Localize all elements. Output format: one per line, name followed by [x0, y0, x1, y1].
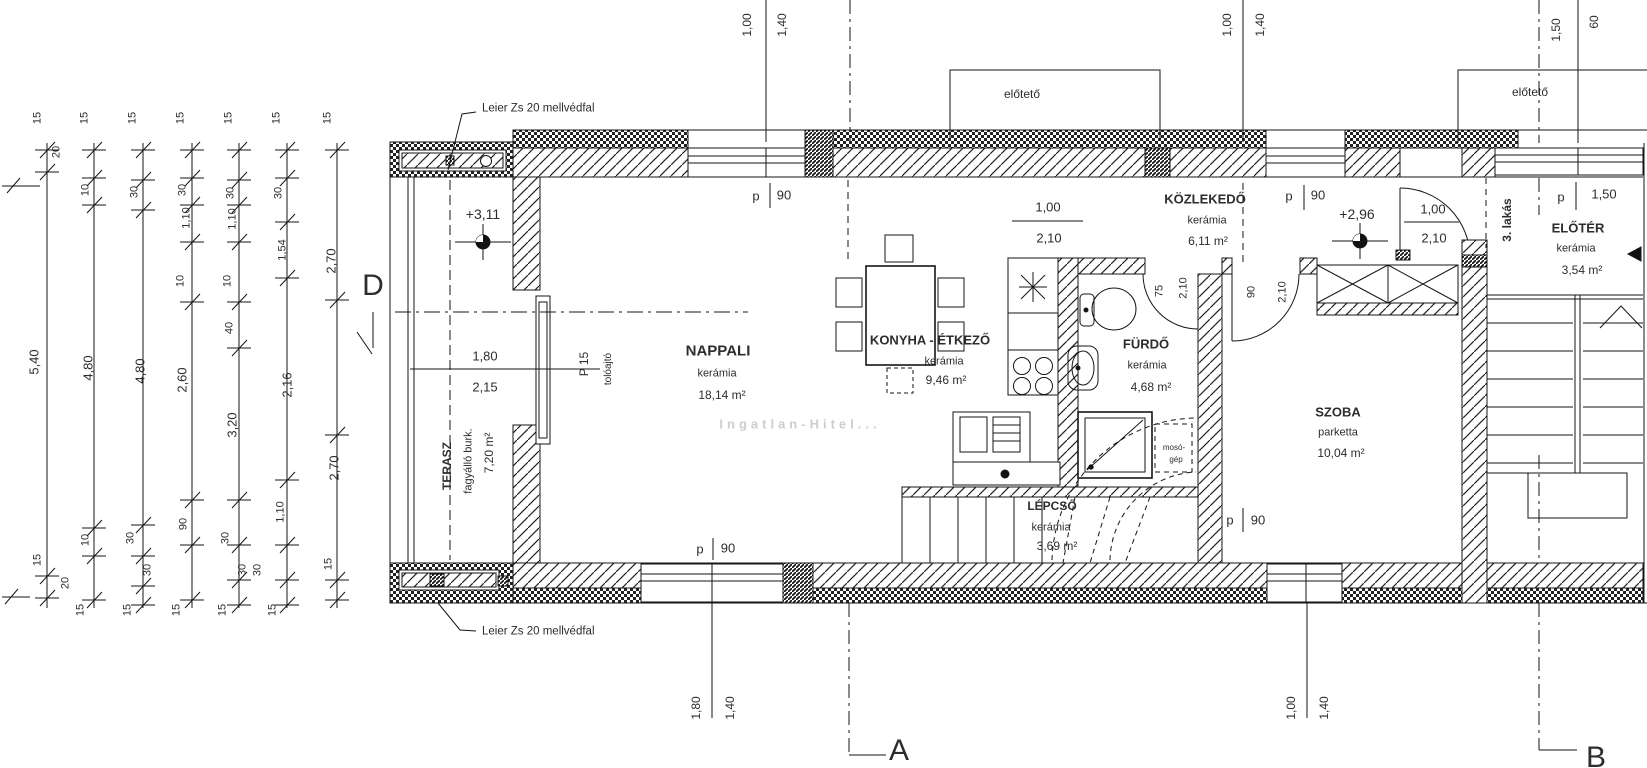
dim-chain: 5,40 [28, 349, 41, 374]
dim-top-left-a: 1,00 [741, 13, 753, 36]
dim-chain: 30 [130, 186, 141, 198]
dim-chain: 2,70 [325, 248, 338, 273]
room-finish-furdo: kerámia [1127, 361, 1166, 372]
window-parapet-value: 90 [1311, 189, 1325, 202]
dim-chain: 15 [224, 112, 235, 124]
dining-table-icon [836, 235, 964, 393]
dim-chain: 15 [123, 604, 134, 616]
level-marker-value: +2,96 [1339, 207, 1374, 221]
parapet-note-bottom: Leier Zs 20 mellvédfal [482, 626, 595, 638]
dim-chain: 2,70 [328, 455, 341, 480]
window-parapet-value: 1,50 [1591, 188, 1616, 201]
dim-chain: 15 [324, 558, 335, 570]
room-name-szoba: SZOBA [1315, 406, 1361, 419]
door-height: 2,10 [1179, 277, 1190, 298]
dim-chain: 10 [176, 275, 187, 287]
room-name-eloter: ELŐTÉR [1552, 222, 1605, 235]
toilet-icon [1080, 288, 1136, 330]
dim-chain: 15 [218, 604, 229, 616]
opening-width: 1,00 [1035, 201, 1060, 214]
dim-chain: 30 [274, 187, 285, 199]
dim-chain: 15 [76, 604, 87, 616]
washer-label: gép [1169, 456, 1182, 464]
dim-chain: 1,10 [228, 208, 239, 229]
dim-chain: 3,20 [226, 412, 239, 437]
floorplan-linework [0, 0, 1647, 768]
door-height: 2,10 [1278, 281, 1289, 302]
level-marker-icon [455, 223, 1388, 260]
dim-chain: 30 [126, 532, 137, 544]
window-parapet-p: p [1226, 514, 1233, 527]
sliding-door [536, 296, 550, 444]
room-finish-lepcso: kerámia [1031, 523, 1070, 534]
dim-chain: 15 [33, 554, 44, 566]
dim-chain: 15 [272, 112, 283, 124]
window-parapet-value: 90 [721, 542, 735, 555]
window-parapet-value: 90 [777, 189, 791, 202]
door-height: 2,10 [1421, 232, 1446, 245]
room-finish-szoba: parketta [1318, 428, 1358, 439]
window-parapet-p: p [1285, 190, 1292, 203]
room-area-lepcso: 3,69 m² [1037, 540, 1078, 552]
room-finish-nappali: kerámia [697, 369, 736, 380]
window-parapet-p: p [752, 190, 759, 203]
dim-bottom-right-b: 1,40 [1318, 696, 1330, 719]
dim-bottom-left-b: 1,40 [724, 696, 736, 719]
dim-chain: 10 [81, 534, 92, 546]
room-area-konyha-etkezo: 9,46 m² [926, 374, 967, 386]
room-finish-terasz: fagyálló burk. [464, 428, 475, 493]
window-parapet-p: p [1557, 191, 1564, 204]
dim-top-right-b: 60 [1588, 15, 1600, 28]
canopy-label-left: előtető [1004, 88, 1040, 100]
opening-height: 2,10 [1036, 232, 1061, 245]
dim-bottom-right-a: 1,00 [1285, 696, 1297, 719]
floor-plan-canvas: Ingatlan-Hitel... Leier Zs 20 mellvédfal… [0, 0, 1647, 768]
opening-width: 1,80 [472, 350, 497, 363]
section-marker-d: D [362, 271, 384, 301]
dim-bottom-left-a: 1,80 [690, 696, 702, 719]
opening-height: 2,15 [472, 381, 497, 394]
dim-chain: 30 [178, 184, 189, 196]
room-area-furdo: 4,68 m² [1131, 381, 1172, 393]
dim-chain: 1,10 [276, 501, 287, 522]
door-width: 90 [1247, 286, 1258, 298]
canopy-label-right: előtető [1512, 86, 1548, 98]
dim-chain: 15 [176, 112, 187, 124]
room-area-kozlekedo: 6,11 m² [1188, 235, 1228, 247]
window-parapet-p: p [696, 543, 703, 556]
building-shell [2, 0, 1647, 755]
room-door [1232, 274, 1299, 341]
dim-chain: 4,80 [82, 355, 95, 380]
room-name-terasz: TERASZ [441, 442, 453, 490]
dim-chain: 2,16 [281, 372, 294, 397]
dim-top-right-a: 1,50 [1550, 18, 1562, 41]
dim-chain: 30 [238, 564, 249, 576]
dim-chain: 20 [52, 146, 63, 158]
kitchen-counter [953, 258, 1060, 485]
wardrobe [1317, 265, 1458, 315]
room-finish-konyha-etkezo: kerámia [924, 357, 963, 368]
dim-top-left-b: 1,40 [776, 13, 788, 36]
dim-chain: 30 [226, 187, 237, 199]
parapet-note-top: Leier Zs 20 mellvédfal [482, 103, 595, 115]
dim-chain: 10 [223, 275, 234, 287]
door-width: 75 [1155, 285, 1166, 297]
dim-chain: 10 [81, 184, 92, 196]
dim-chain: 15 [323, 112, 334, 124]
dim-top-mid-b: 1,40 [1254, 13, 1266, 36]
level-marker-value: +3,11 [466, 207, 500, 221]
sliding-door-type: P 15 [578, 352, 590, 376]
dim-chain: 40 [225, 322, 236, 334]
dim-chain: 15 [268, 604, 279, 616]
section-marker-b: B [1586, 743, 1606, 768]
entry-arrow-icon [1628, 247, 1641, 261]
room-area-nappali: 18,14 m² [698, 389, 745, 401]
dim-chain: 15 [80, 112, 91, 124]
room-name-konyha-etkezo: KONYHA - ÉTKEZŐ [870, 334, 990, 347]
room-name-furdo: FÜRDŐ [1123, 338, 1169, 351]
window-parapet-value: 90 [1251, 514, 1265, 527]
watermark: Ingatlan-Hitel... [719, 418, 880, 431]
dim-chain: 30 [143, 564, 154, 576]
section-marker-a: A [889, 736, 909, 766]
room-area-szoba: 10,04 m² [1317, 447, 1364, 459]
room-name-lepcso: LÉPCSŐ [1027, 500, 1076, 512]
leader-line [438, 603, 476, 631]
stair-up-arrow-icon [1600, 306, 1642, 328]
dim-chain: 30 [253, 564, 264, 576]
room-name-nappali: NAPPALI [686, 344, 751, 359]
sliding-door-label: tolóajtó [604, 353, 614, 385]
room-area-terasz: 7,20 m² [483, 433, 495, 474]
door-width: 1,00 [1420, 203, 1445, 216]
dim-chain: 15 [128, 112, 139, 124]
sink-icon [1019, 272, 1047, 302]
dim-top-mid-a: 1,00 [1221, 13, 1233, 36]
apartment-label: 3. lakás [1501, 198, 1513, 241]
shower-icon [1078, 412, 1152, 478]
dim-chain: 20 [61, 577, 72, 589]
dim-chain: 1,54 [278, 239, 289, 260]
bathroom-door [1143, 274, 1198, 329]
room-finish-kozlekedo: kerámia [1187, 216, 1226, 227]
dim-chain: 2,60 [176, 367, 189, 392]
dim-chain: 15 [33, 112, 44, 124]
room-finish-eloter: kerámia [1556, 244, 1595, 255]
dim-chain: 30 [221, 532, 232, 544]
dim-chain: 90 [179, 518, 190, 530]
dim-chain: 15 [172, 604, 183, 616]
room-area-eloter: 3,54 m² [1562, 264, 1603, 276]
dim-chain: 1,10 [182, 207, 193, 228]
dim-chain: 4,80 [134, 358, 147, 383]
room-name-kozlekedo: KÖZLEKEDŐ [1164, 193, 1246, 206]
washer-label: mosó- [1163, 444, 1185, 452]
